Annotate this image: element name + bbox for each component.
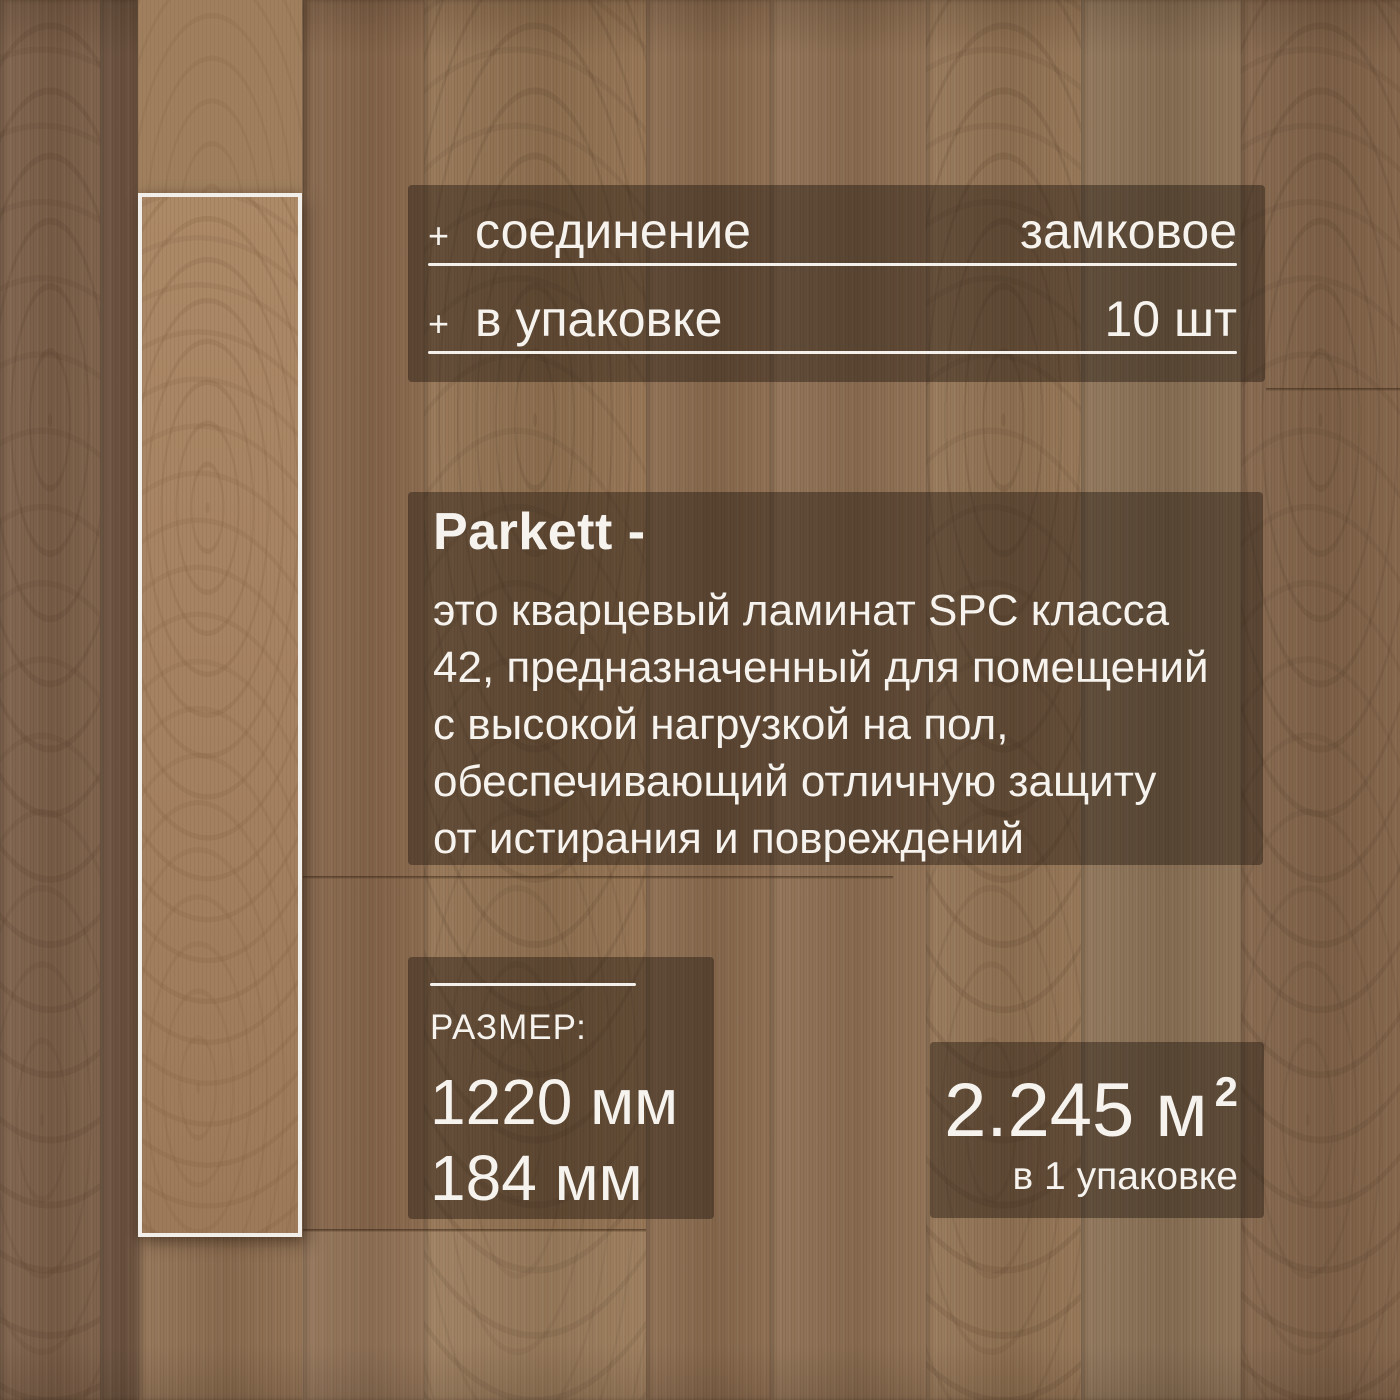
spec-value: замковое [1020, 202, 1237, 260]
coverage-amount: 2.245 м [944, 1068, 1208, 1153]
coverage-note: в 1 упаковке [930, 1154, 1238, 1200]
plank-joint-seam [1266, 388, 1400, 391]
coverage-superscript: 2 [1215, 1071, 1238, 1113]
coverage-panel: 2.245 м2 в 1 упаковке [930, 1042, 1264, 1218]
plus-icon: + [428, 295, 449, 353]
laminate-plank-sample [138, 193, 302, 1237]
spec-label: соединение [475, 202, 751, 260]
plank-column [100, 0, 139, 1400]
plank-joint-seam [303, 1229, 646, 1232]
product-title: Parkett - [433, 500, 1238, 564]
description-panel: Parkett - это кварцевый ламинат SPC клас… [408, 492, 1263, 865]
description-line: с высокой нагрузкой на пол, [433, 696, 1238, 753]
size-length: 1220 мм [430, 1064, 714, 1140]
description-line: это кварцевый ламинат SPC класса [433, 582, 1238, 639]
laminate-plank-top-fragment [138, 0, 302, 193]
plank-column [0, 0, 100, 1400]
light-plank-fragment [303, 1231, 646, 1400]
specs-panel: + соединение замковое + в упаковке 10 шт [408, 185, 1265, 382]
size-label: РАЗМЕР: [430, 1008, 714, 1048]
plank-joint-seam [303, 876, 893, 879]
spec-value: 10 шт [1104, 290, 1237, 348]
spec-divider [428, 263, 1237, 266]
description-line: обеспечивающий отличную защиту [433, 753, 1238, 810]
spec-label: в упаковке [475, 290, 722, 348]
product-infographic: + соединение замковое + в упаковке 10 шт… [0, 0, 1400, 1400]
size-width: 184 мм [430, 1140, 714, 1216]
description-line: от истирания и повреждений [433, 810, 1238, 867]
plank-column [303, 0, 424, 1400]
coverage-value: 2.245 м2 [930, 1070, 1238, 1152]
plus-icon: + [428, 207, 449, 265]
description-line: 42, предназначенный для помещений [433, 639, 1238, 696]
spec-divider [428, 351, 1237, 354]
spec-row-connection: + соединение замковое [428, 202, 1237, 265]
size-divider [430, 983, 636, 986]
spec-row-package: + в упаковке 10 шт [428, 290, 1237, 353]
size-panel: РАЗМЕР: 1220 мм 184 мм [408, 957, 714, 1219]
